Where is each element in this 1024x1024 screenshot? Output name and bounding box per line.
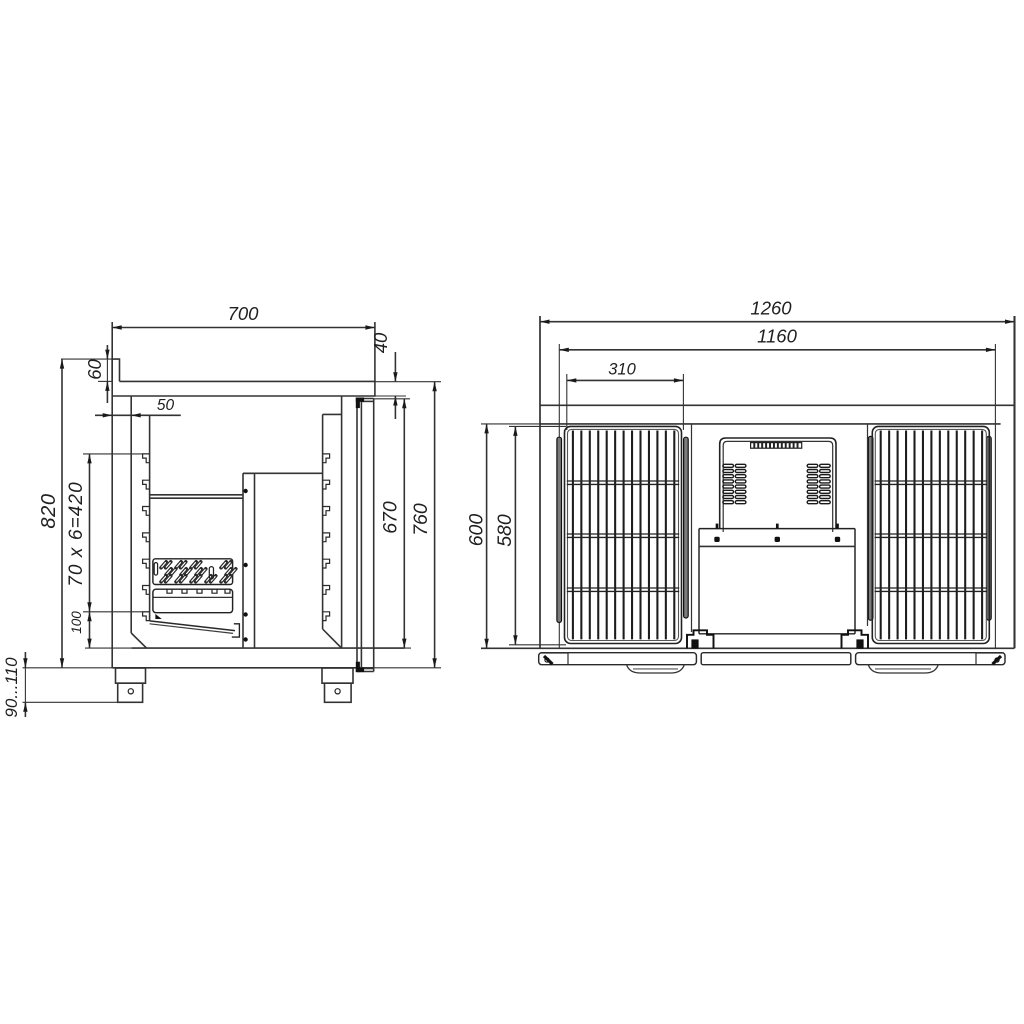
svg-text:820: 820 <box>38 493 60 528</box>
svg-text:100: 100 <box>69 611 84 634</box>
svg-text:700: 700 <box>228 303 260 324</box>
svg-text:1160: 1160 <box>757 326 797 347</box>
svg-text:580: 580 <box>494 514 516 547</box>
svg-text:90...110: 90...110 <box>2 657 21 718</box>
svg-text:70 x 6=420: 70 x 6=420 <box>66 481 87 587</box>
svg-text:670: 670 <box>380 501 402 534</box>
svg-text:50: 50 <box>157 397 175 414</box>
svg-text:40: 40 <box>370 332 391 353</box>
svg-text:310: 310 <box>608 361 636 379</box>
svg-text:60: 60 <box>84 359 105 380</box>
svg-text:760: 760 <box>410 503 432 536</box>
svg-text:1260: 1260 <box>750 298 792 319</box>
svg-text:600: 600 <box>466 514 488 547</box>
